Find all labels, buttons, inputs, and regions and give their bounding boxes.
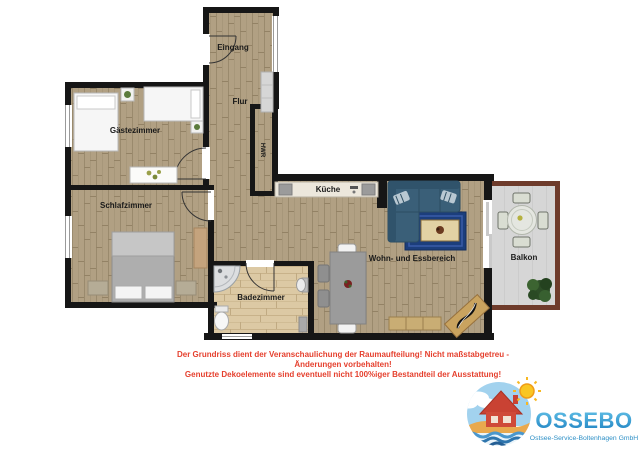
room-label-eingang: Eingang [217,43,249,52]
room-label-gaestezimmer: Gästezimmer [110,126,160,135]
disclaimer-line-2: Änderungen vorbehalten! [294,360,391,369]
room-label-balkon: Balkon [511,253,538,262]
sink-icon [297,278,309,292]
sideboard-icon [389,317,441,330]
window-gaestezimmer [64,105,72,147]
window-flur [272,16,280,72]
guest-bed-horizontal-icon [144,87,203,121]
room-label-badezimmer: Badezimmer [237,293,285,302]
guest-bed-vertical-icon [74,93,118,151]
balcony-plant-icon [527,278,552,302]
logo-name: OSSEBO [535,408,632,433]
bedroom-bench-icon [194,228,207,268]
disclaimer-line-3: Genutzte Dekoelemente sind eventuell nic… [185,370,501,379]
room-label-wohnbereich: Wohn- und Essbereich [369,254,456,263]
coffee-table-icon [421,220,459,241]
room-label-kueche: Küche [316,185,341,194]
room-label-hwr: HWR [259,143,265,158]
disclaimer-line-1: Der Grundriss dient der Veranschaulichun… [177,350,509,359]
guest-plant-icon-2 [191,121,203,133]
logo-subtitle: Ostsee-Service-Boltenhagen GmbH [530,435,639,442]
door-balkon [483,200,492,268]
company-logo: OSSEBO Ostsee-Service-Boltenhagen GmbH [460,377,638,447]
toilet-icon [215,306,229,330]
window-badezimmer [222,334,252,339]
disclaimer: Der Grundriss dient der Veranschaulichun… [177,350,509,379]
room-label-schlafzimmer: Schlafzimmer [100,201,152,210]
logo-house-body [486,412,516,427]
floorplan-svg: Eingang Flur HWR Gästezimmer Schlafzimme… [0,0,640,453]
guest-dresser-icon [130,167,177,183]
guest-plant-icon [121,88,134,101]
wardrobe-icon [261,72,273,112]
double-bed-icon [112,232,174,302]
room-label-flur: Flur [232,97,247,106]
radiator-icon [299,317,307,332]
floorplan-page: Eingang Flur HWR Gästezimmer Schlafzimme… [0,0,640,453]
window-schlafzimmer [64,216,72,258]
faucet-icon [350,186,358,189]
